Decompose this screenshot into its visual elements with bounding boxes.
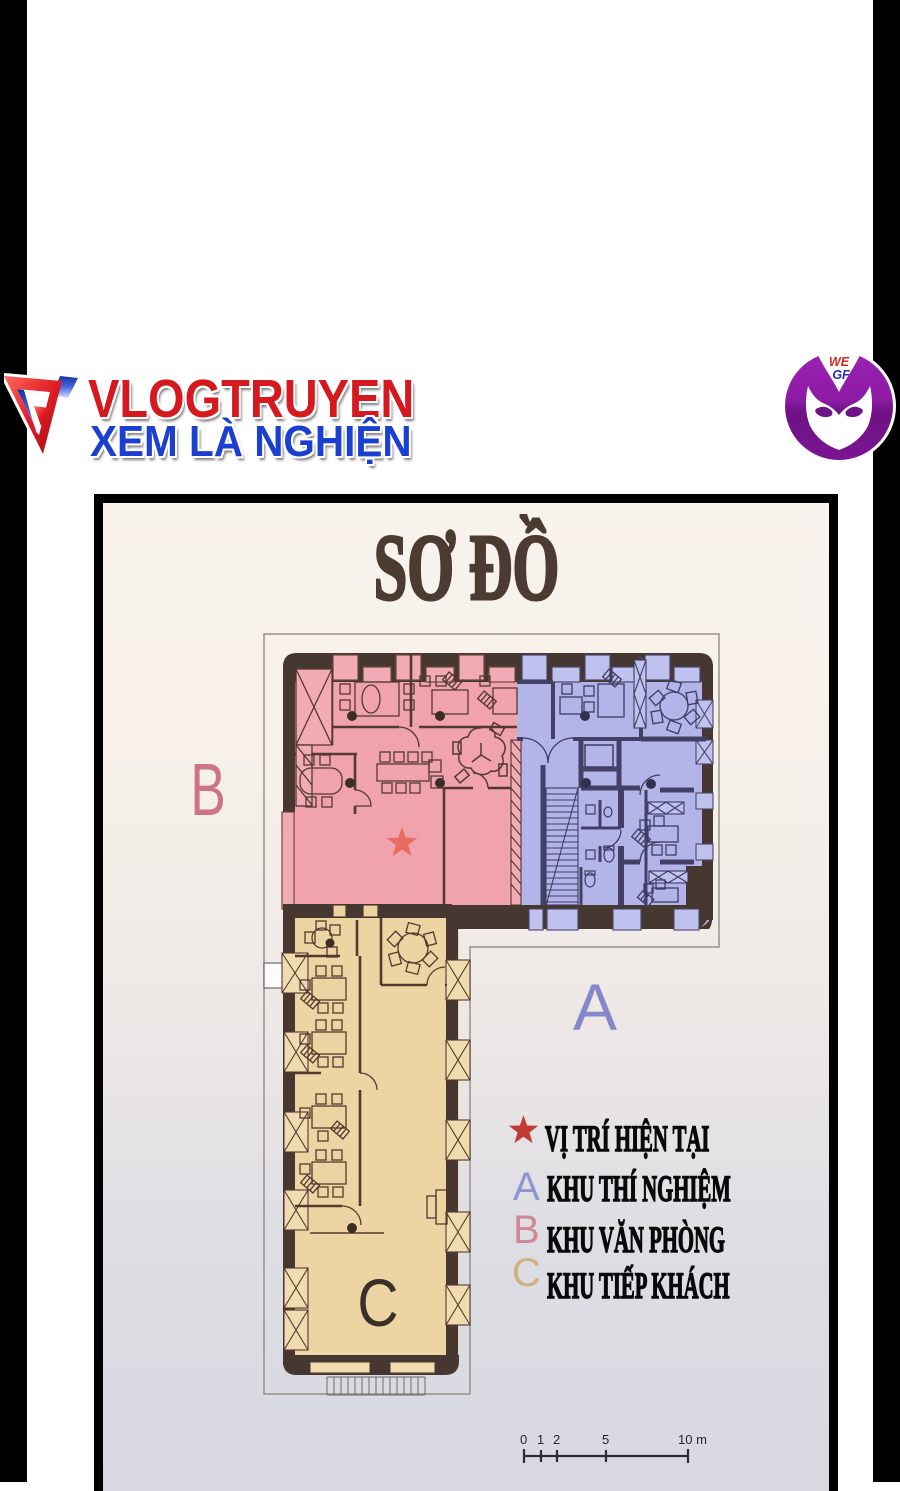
- svg-text:1: 1: [537, 1432, 544, 1447]
- svg-text:0: 0: [520, 1432, 527, 1447]
- svg-text:2: 2: [553, 1432, 560, 1447]
- svg-text:5: 5: [602, 1432, 609, 1447]
- svg-text:10 m: 10 m: [678, 1432, 707, 1447]
